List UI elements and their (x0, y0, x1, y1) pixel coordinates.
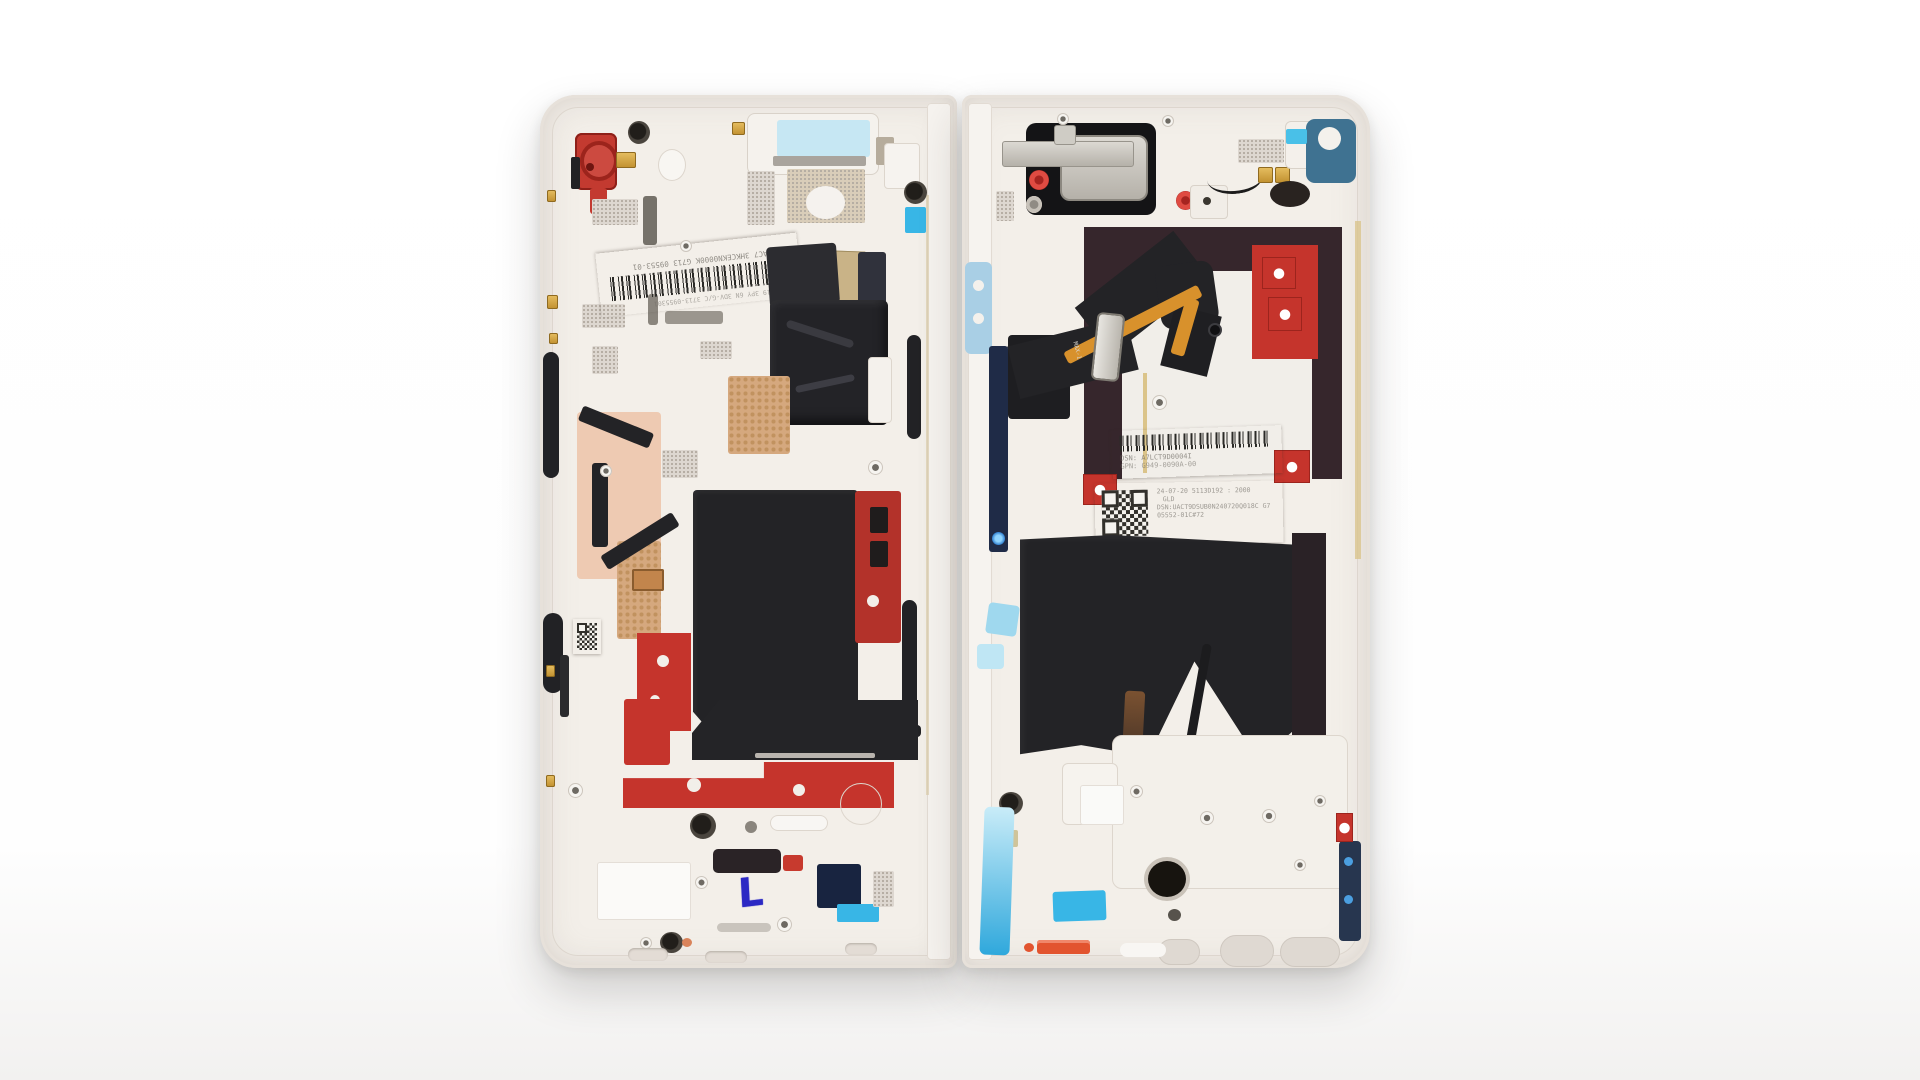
screw (1057, 113, 1069, 125)
blue-glow-dot (992, 532, 1005, 545)
qr-code (1102, 490, 1149, 537)
small-port-dot (1168, 909, 1181, 921)
blue-dot (1344, 895, 1353, 904)
right-half-frame: 1SY BOS2P (962, 95, 1370, 968)
camera-dot (586, 163, 594, 171)
bar-hole (793, 784, 805, 796)
left-half-frame: 24-07-19 3PY 6N 3DV-G/C 3713-0955301 DSN… (540, 95, 957, 968)
frame-bar (665, 311, 723, 324)
camera-module (575, 133, 617, 190)
screw (1026, 196, 1042, 213)
barcode-sticker: DSN: A7LCT9D0004I GPN: G949-0090A-00 (1111, 425, 1283, 479)
screw (695, 876, 708, 889)
gold-contact (547, 190, 556, 202)
screw (868, 460, 883, 475)
flex-connector-copper (632, 569, 664, 591)
frame-slot (643, 196, 657, 245)
strip-hole (657, 655, 669, 667)
cyan-adhesive-patch (777, 120, 870, 157)
cyan-gradient-strip (979, 807, 1014, 956)
screw (600, 465, 612, 477)
screw (1314, 795, 1326, 807)
adhesive-pad (747, 171, 775, 225)
cyan-module (1052, 890, 1106, 922)
adhesive-pad (662, 450, 698, 478)
small-flex-strip (571, 157, 580, 189)
gold-screw (732, 122, 745, 135)
cyan-fragment (985, 602, 1020, 637)
camera-lens-ring (580, 141, 618, 181)
round-cutout (806, 186, 845, 219)
front-camera-hole (628, 121, 650, 144)
bottom-slot (705, 951, 747, 963)
motor-red-tip (783, 855, 803, 871)
blue-dot (1344, 857, 1353, 866)
adhesive-pad (700, 341, 732, 359)
adhesive-pad (996, 191, 1014, 221)
cyan-fragment (977, 644, 1004, 669)
red-screw-marker (1268, 297, 1302, 331)
screw (1200, 811, 1214, 825)
right-edge-khaki-strip (1355, 221, 1361, 559)
red-screw-marker (1336, 813, 1353, 842)
bottom-display-flex (692, 700, 918, 760)
edge-flex-strip (560, 655, 569, 717)
silver-pill (717, 923, 771, 932)
navy-edge-strip (1339, 841, 1361, 941)
adhesive-pad (873, 871, 894, 907)
camera-connector (616, 152, 636, 168)
cyan-tab (1286, 129, 1307, 144)
screw (568, 783, 583, 798)
strip-hole (973, 313, 984, 324)
orange-dot (682, 938, 692, 947)
adhesive-pad (592, 199, 638, 225)
metal-glint (755, 753, 875, 758)
gold-contact (546, 665, 555, 677)
camera-thru-hole (1148, 861, 1186, 897)
dark-oval-port (1270, 181, 1310, 207)
white-module (597, 862, 691, 920)
orange-strip (1037, 940, 1090, 954)
volume-button-flex (543, 352, 559, 478)
copper-pad (728, 376, 790, 454)
board-hole (867, 595, 879, 607)
teardown-photo: 24-07-19 3PY 6N 3DV-G/C 3713-0955301 DSN… (0, 0, 1920, 1080)
etched-circle (658, 149, 686, 181)
flex-loop-hole (1208, 323, 1222, 337)
gold-contact (547, 295, 558, 309)
gold-contact (549, 333, 558, 344)
ink-mark-L: L (737, 871, 764, 914)
metal-bracket-tab (1054, 125, 1076, 145)
navy-edge-column (989, 346, 1008, 552)
qr-sticker-line4: 05552-01C#72 (1157, 510, 1279, 520)
navy-module (817, 864, 861, 908)
strip-hole (973, 280, 984, 291)
bottom-bracket-plate (1112, 735, 1348, 889)
adhesive-pad (1238, 139, 1284, 163)
gray-washer (1220, 935, 1274, 967)
screw (680, 240, 692, 252)
gold-contact-block (1258, 167, 1273, 183)
screw (1130, 785, 1143, 798)
lightblue-strip (965, 262, 992, 354)
bottom-slot (628, 948, 668, 961)
red-seal (1029, 170, 1049, 190)
bottom-slot (845, 943, 877, 955)
white-pill (1120, 943, 1166, 957)
screw (1152, 395, 1167, 410)
teal-patch (1306, 119, 1356, 183)
white-bracket-rail (868, 357, 892, 423)
orange-dot (1024, 943, 1034, 952)
gold-contact (546, 775, 555, 787)
display-flex-bundle (766, 243, 840, 308)
sensor-hole (904, 181, 927, 204)
white-pill-bracket (770, 815, 828, 831)
qr-sticker-text: 24-07-20 5113D192 : 2000 GLD DSN:UACT9DS… (1157, 485, 1280, 519)
cyan-tab (905, 207, 926, 233)
red-sub-board (855, 491, 901, 643)
board-slot (870, 507, 888, 533)
red-connector-piece (624, 699, 670, 765)
speaker-port-hole (690, 813, 716, 839)
mic-dot (1203, 197, 1211, 205)
screw (777, 917, 792, 932)
board-slot (870, 541, 888, 567)
screw (1262, 809, 1276, 823)
small-gray-dot (745, 821, 757, 833)
bar-hole (687, 778, 701, 792)
white-module (1080, 785, 1124, 825)
cyan-tab-bottom (837, 904, 879, 922)
left-hinge-gold-line (926, 195, 929, 795)
screw (1162, 115, 1174, 127)
patch-hole (1318, 127, 1341, 150)
sticker-barcode (1119, 430, 1269, 451)
etched-circle (840, 783, 882, 825)
red-screw-marker (1262, 257, 1296, 289)
screw (1294, 859, 1306, 871)
mini-qr-code (577, 623, 597, 650)
side-antenna-bar (907, 335, 921, 439)
adhesive-pad (592, 346, 618, 374)
left-hinge-rail (927, 103, 951, 960)
mini-qr-sticker (573, 619, 601, 654)
gray-bar (773, 156, 866, 166)
gray-washer (1280, 937, 1340, 967)
